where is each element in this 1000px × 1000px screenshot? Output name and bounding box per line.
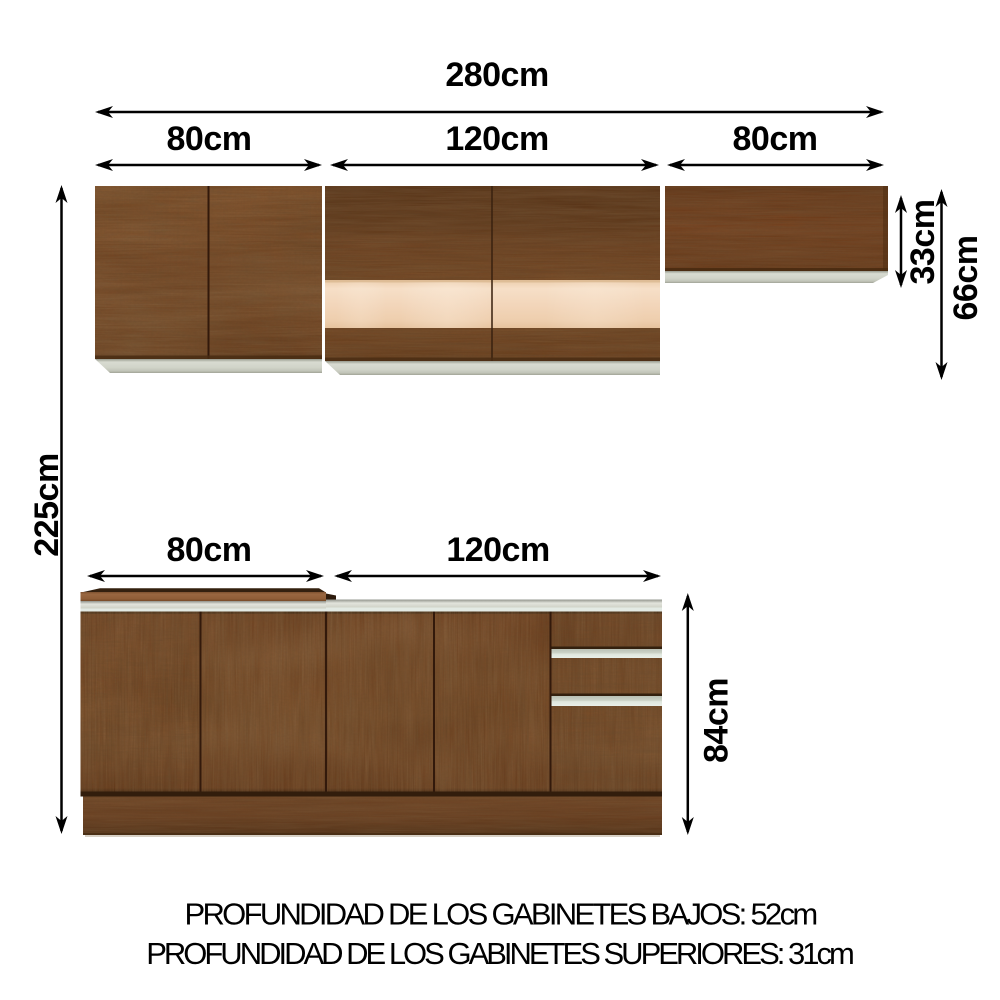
svg-text:80cm: 80cm — [733, 120, 818, 158]
svg-text:80cm: 80cm — [167, 531, 252, 569]
svg-text:84cm: 84cm — [698, 678, 736, 763]
svg-text:PROFUNDIDAD DE LOS GABINETES B: PROFUNDIDAD DE LOS GABINETES BAJOS: 52cm — [185, 897, 817, 932]
svg-text:33cm: 33cm — [904, 200, 942, 285]
svg-text:80cm: 80cm — [167, 120, 252, 158]
svg-text:280cm: 280cm — [445, 56, 548, 94]
svg-text:PROFUNDIDAD DE LOS GABINETES S: PROFUNDIDAD DE LOS GABINETES SUPERIORES:… — [146, 936, 853, 971]
svg-text:120cm: 120cm — [446, 531, 549, 569]
svg-text:66cm: 66cm — [947, 236, 985, 321]
svg-text:225cm: 225cm — [28, 453, 66, 556]
svg-text:120cm: 120cm — [445, 120, 548, 158]
